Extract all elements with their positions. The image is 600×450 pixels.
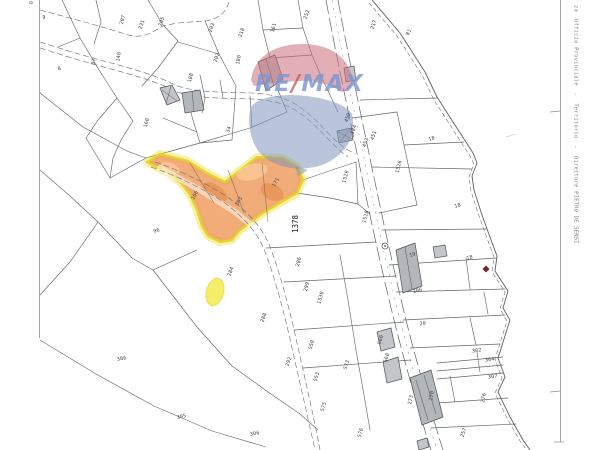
parcel-label: 96 <box>153 227 161 234</box>
parcel-label: 276 <box>480 393 488 404</box>
cadastral-map: RE/MAX 982072312052032029714821816125221… <box>0 0 600 450</box>
parcel-label: 34 <box>225 126 233 134</box>
parcel-label: 573 <box>343 359 351 370</box>
track-upper-left <box>40 2 229 36</box>
parcel-label: 553 <box>313 371 321 382</box>
parcel-label: 202 <box>213 52 222 63</box>
parcel-label: 306 <box>250 430 261 438</box>
red-diamond-marker <box>482 265 489 272</box>
parcel-label: 218 <box>238 27 247 38</box>
highlight-spot <box>203 276 227 307</box>
parcel-label: 386 <box>117 355 128 363</box>
parcel-label: 148 <box>115 52 123 63</box>
parcel-label-1378: 1378 <box>291 214 300 233</box>
parcel-label: 304 <box>485 356 495 363</box>
parcel-label: 160 <box>143 117 151 128</box>
building <box>417 438 429 450</box>
parcel-label: 18 <box>428 135 436 142</box>
parcel-label: 1530 <box>316 291 325 305</box>
parcel-label: 257 <box>460 427 469 438</box>
highlight-region <box>147 154 303 242</box>
building <box>433 245 447 258</box>
parcel-label: 217 <box>370 19 379 30</box>
parcel-label: 18 <box>466 254 474 261</box>
parcel-label: 20 <box>419 321 426 328</box>
cadastral-map-page: RE/MAX 982072312052032029714821816125221… <box>0 0 600 450</box>
parcel-label: 284 <box>227 266 236 277</box>
parcel-label: 252 <box>303 9 312 20</box>
parcel-label: 1528 <box>361 210 370 224</box>
parcel-label: 292 <box>285 356 294 367</box>
parcel-label: 8 <box>57 66 62 73</box>
parcel-label: 180 <box>235 55 243 66</box>
parcel-label: 550 <box>308 339 316 350</box>
parcel-label: 9 <box>42 15 45 21</box>
parcel-label: 307 <box>488 373 498 380</box>
parcel-label: 206 <box>412 287 423 295</box>
parcel-label: 207 <box>119 14 127 25</box>
parcel-label: 161 <box>270 22 278 33</box>
building <box>396 243 422 293</box>
parcel-label: 273 <box>407 395 415 406</box>
parcel-label: 81 <box>405 28 413 37</box>
parcel-label: 286 <box>295 256 303 267</box>
remax-text: RE/MAX <box>255 71 364 97</box>
parcel-label: 299 <box>303 281 311 292</box>
building <box>410 370 443 425</box>
parcel-label: 231 <box>138 19 147 30</box>
parcel-label: 576 <box>357 427 365 438</box>
parcel-label: 188 <box>187 72 195 83</box>
parcel-label: 203 <box>208 22 217 33</box>
right-margin-caption: za Ufficio Provinciale - Territorio - Di… <box>572 5 578 435</box>
parcel-label: 451 <box>370 130 379 141</box>
parcel-label: 288 <box>260 312 269 323</box>
parcel-label: 1529 <box>341 170 350 184</box>
corner-caption: 0 <box>27 1 33 4</box>
building <box>160 85 180 105</box>
parcel-label: 18 <box>454 202 462 209</box>
parcel-label: 575 <box>320 401 328 412</box>
parcel-label: 1526 <box>394 160 403 174</box>
parcel-label: 302 <box>472 347 482 354</box>
